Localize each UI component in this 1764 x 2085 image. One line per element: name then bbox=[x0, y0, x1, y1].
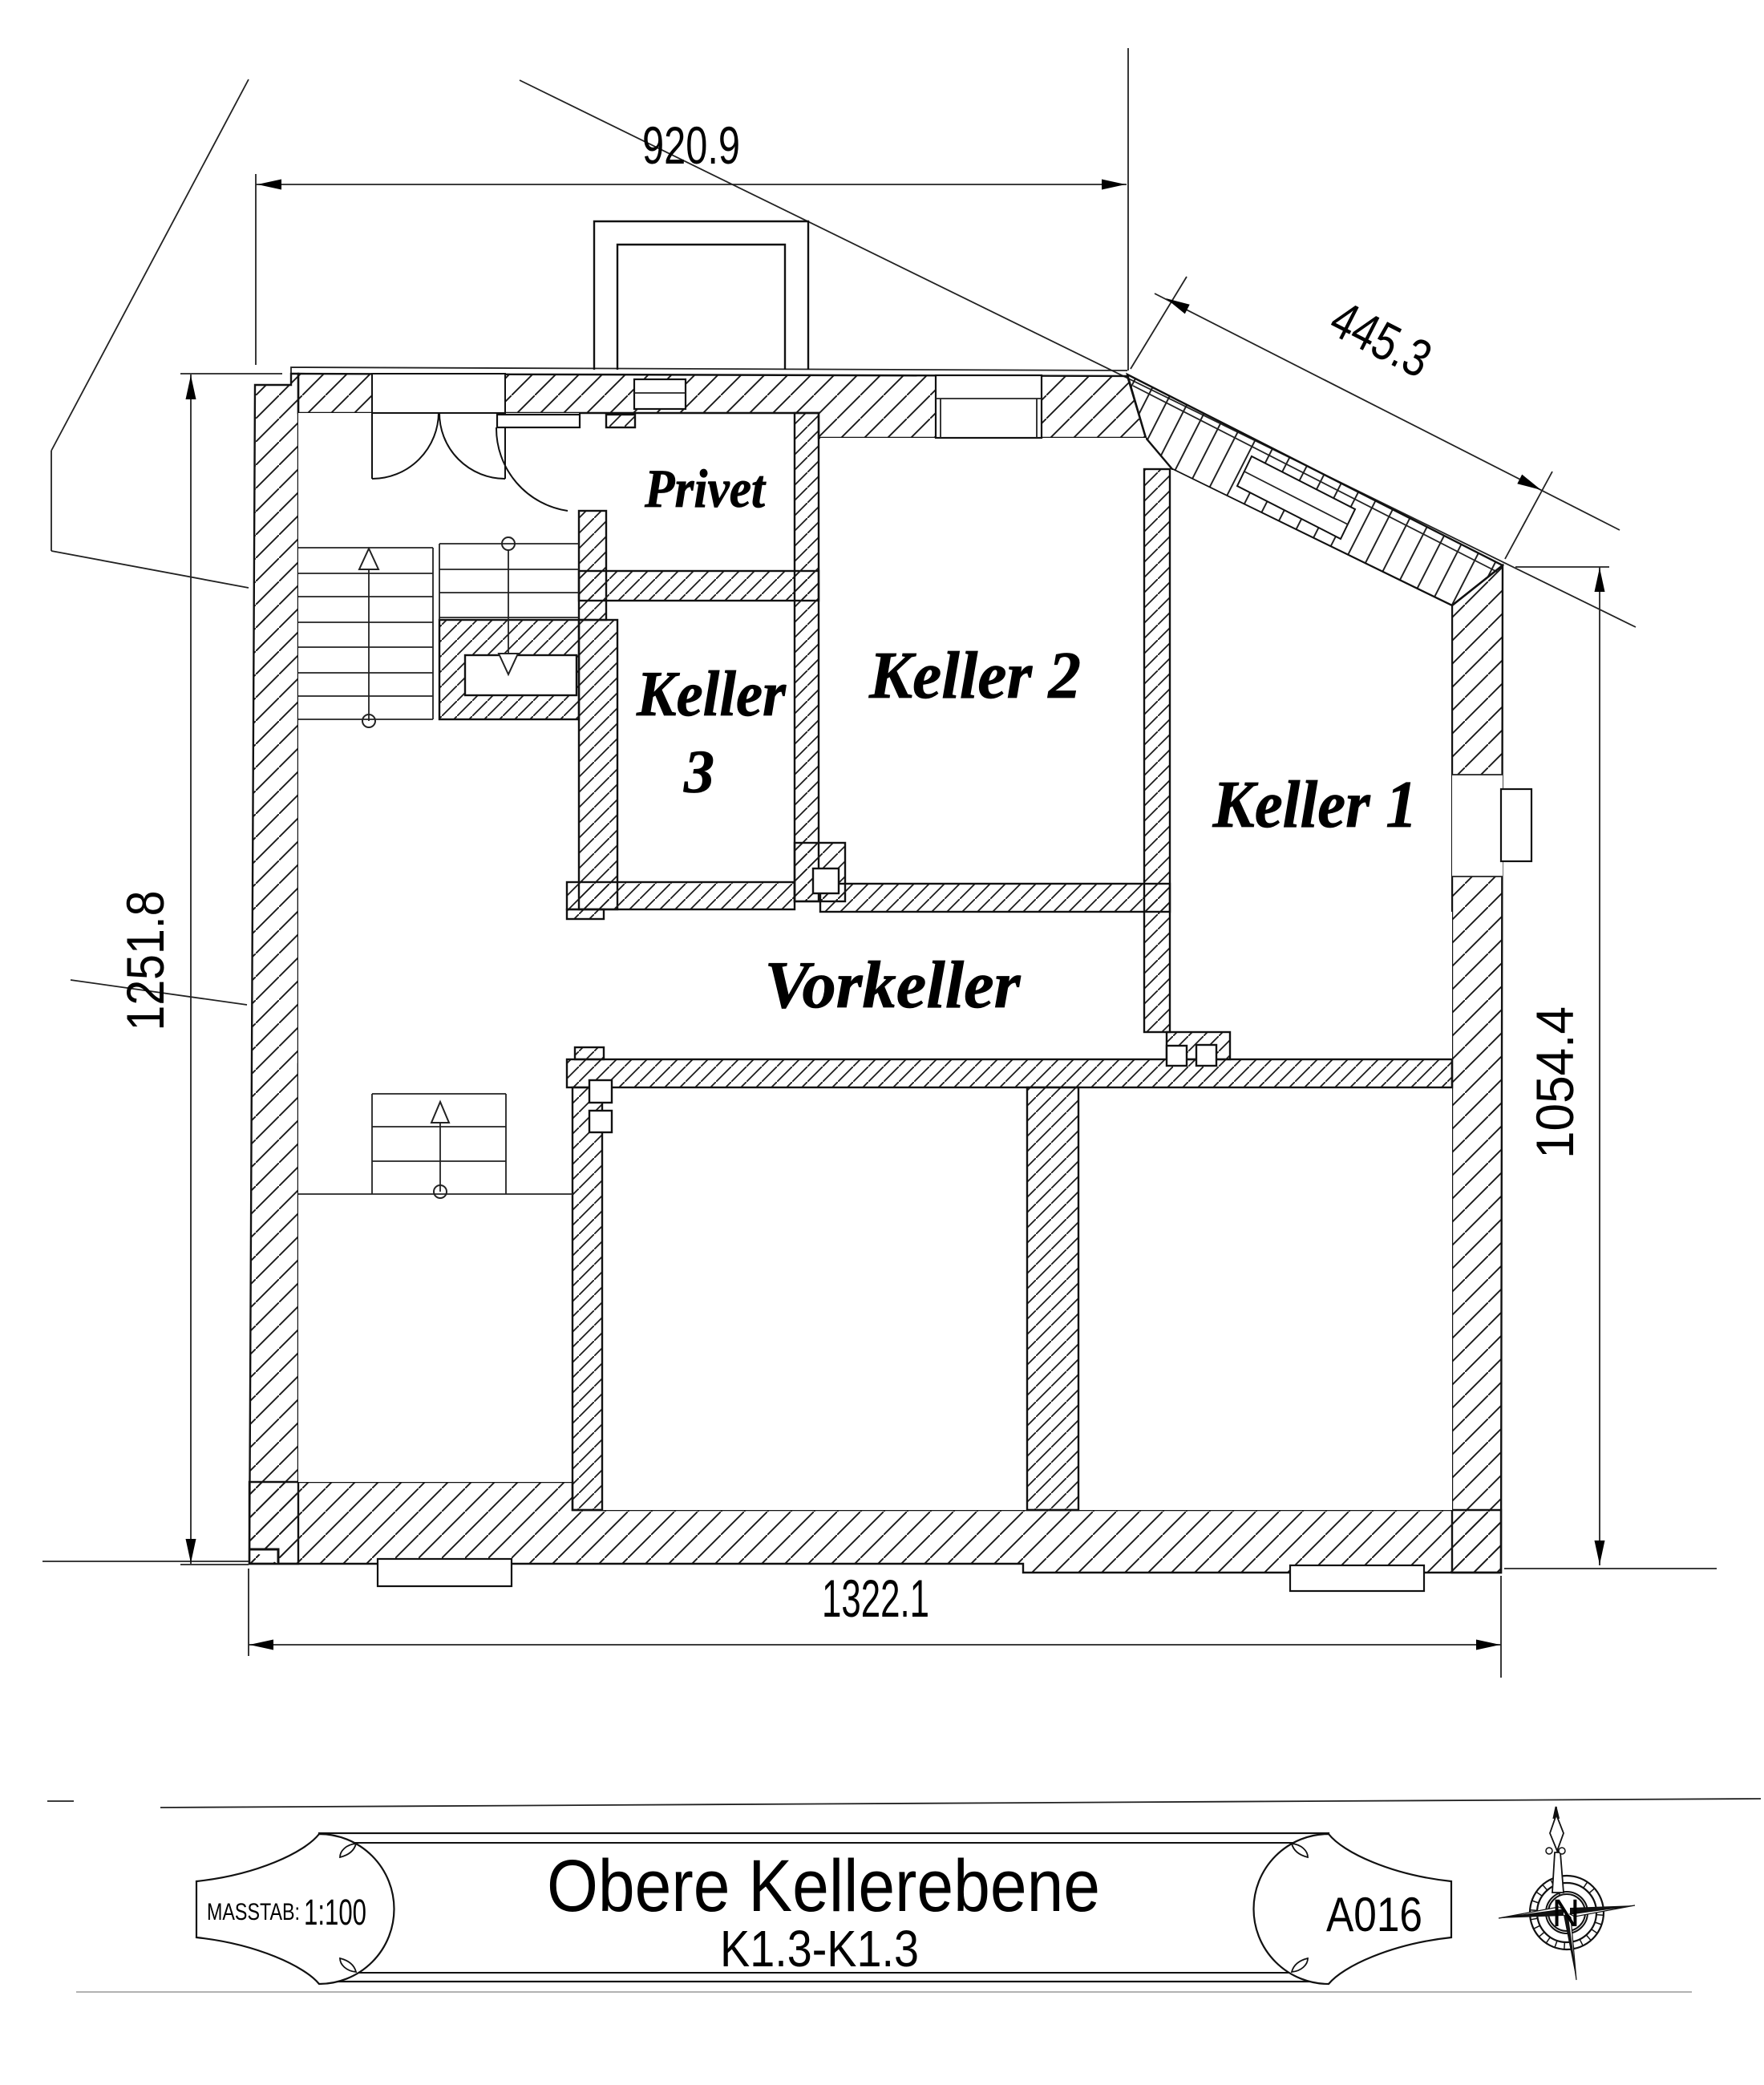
svg-text:N: N bbox=[1552, 1893, 1580, 1935]
svg-text:1:100: 1:100 bbox=[304, 1892, 366, 1933]
svg-text:K1.3-K1.3: K1.3-K1.3 bbox=[720, 1920, 919, 1978]
svg-text:Keller 1: Keller 1 bbox=[1212, 767, 1418, 842]
svg-text:1054.4: 1054.4 bbox=[1525, 1006, 1584, 1159]
svg-text:Keller 2: Keller 2 bbox=[868, 638, 1081, 713]
svg-text:MASSTAB:: MASSTAB: bbox=[207, 1899, 300, 1925]
svg-text:A016: A016 bbox=[1326, 1888, 1422, 1941]
svg-text:1251.8: 1251.8 bbox=[115, 891, 175, 1031]
svg-text:Keller: Keller bbox=[636, 659, 787, 730]
svg-text:Obere Kellerebene: Obere Kellerebene bbox=[547, 1845, 1100, 1927]
svg-text:Vorkeller: Vorkeller bbox=[765, 948, 1022, 1022]
svg-text:1322.1: 1322.1 bbox=[822, 1569, 929, 1628]
svg-text:920.9: 920.9 bbox=[642, 115, 740, 175]
svg-text:3: 3 bbox=[683, 739, 714, 806]
svg-text:Privet: Privet bbox=[644, 458, 767, 519]
